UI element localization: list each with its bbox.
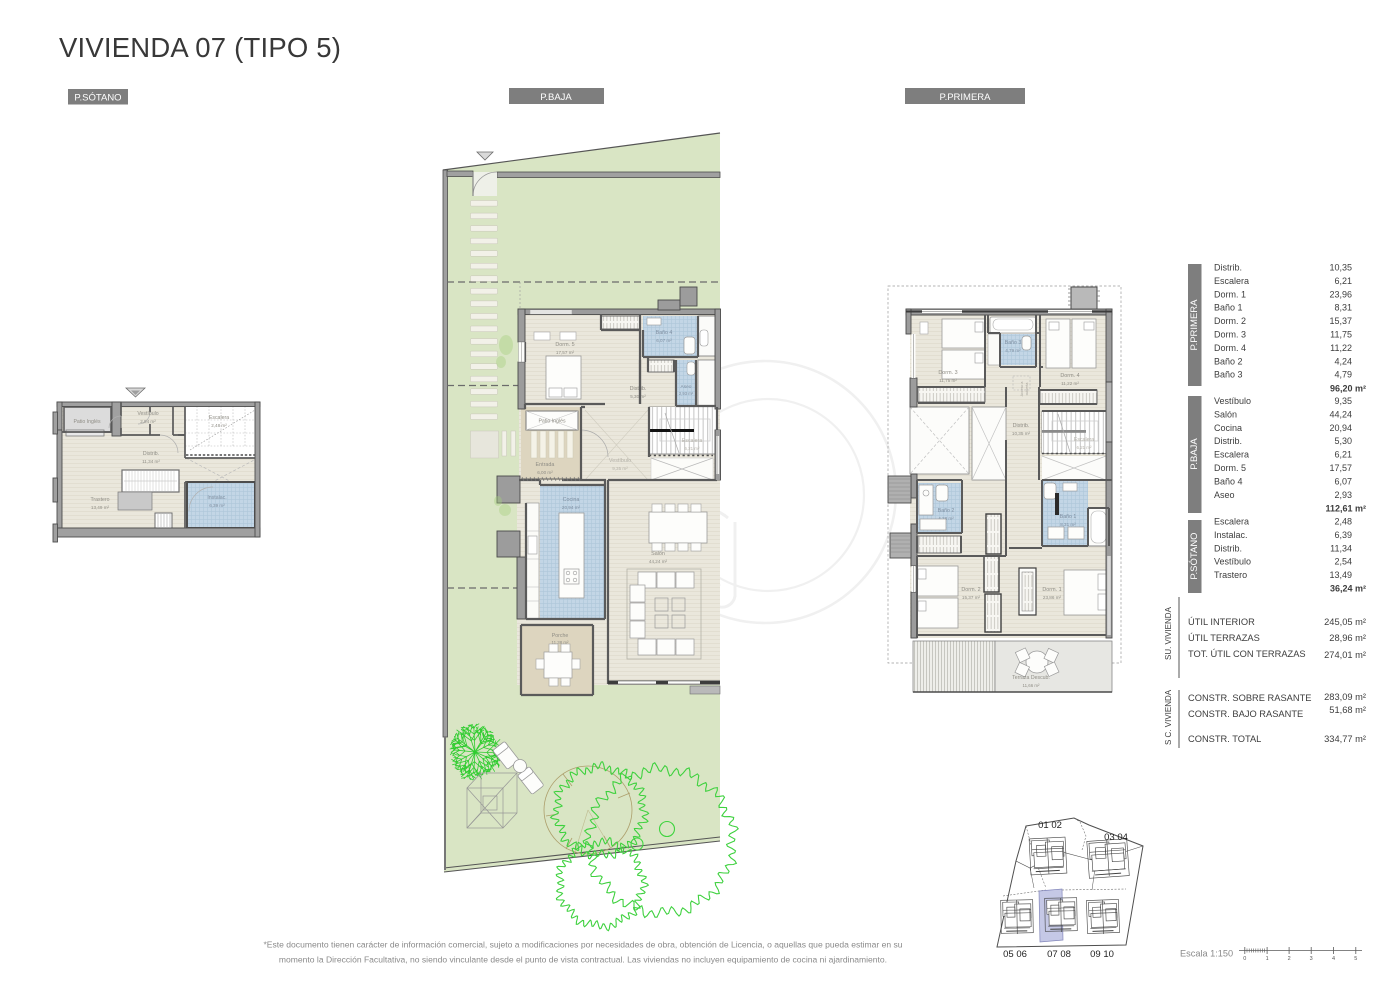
svg-text:11,75: 11,75 [1330,330,1352,340]
svg-text:Entrada: Entrada [536,462,555,468]
svg-text:Escalera: Escalera [682,438,702,444]
svg-text:28,96 m²: 28,96 m² [1329,633,1366,643]
svg-text:Dorm. 4: Dorm. 4 [1060,373,1079,379]
svg-text:momento la Dirección Facultati: momento la Dirección Facultativa, no sie… [279,955,887,965]
svg-text:112,61 m²: 112,61 m² [1325,503,1366,513]
svg-text:23,86 m²: 23,86 m² [1043,595,1062,600]
svg-text:96,20 m²: 96,20 m² [1330,383,1366,393]
svg-text:Escalera: Escalera [1214,276,1249,286]
svg-text:Baño 1: Baño 1 [1060,514,1077,520]
svg-text:Trastero: Trastero [1214,570,1247,580]
svg-text:20,94 m²: 20,94 m² [562,505,581,510]
svg-text:Dorm. 5: Dorm. 5 [1214,463,1246,473]
svg-text:5,30 m²: 5,30 m² [630,394,646,399]
svg-text:Patio Inglés: Patio Inglés [538,419,566,425]
svg-text:Salón: Salón [1214,409,1237,419]
svg-text:15,37: 15,37 [1329,316,1352,326]
svg-text:6,21: 6,21 [1334,450,1352,460]
svg-text:11,34: 11,34 [1330,543,1352,553]
svg-text:Baño 2: Baño 2 [1214,356,1243,366]
svg-text:Vestíbulo: Vestíbulo [137,411,158,417]
svg-text:11,22 m²: 11,22 m² [1061,381,1079,386]
svg-text:Vestíbulo: Vestíbulo [609,458,631,464]
svg-text:Vestíbulo: Vestíbulo [1214,396,1251,406]
svg-text:Baño 4: Baño 4 [1214,476,1243,486]
svg-text:CONSTR. BAJO RASANTE: CONSTR. BAJO RASANTE [1188,709,1303,719]
svg-text:Acceso a: Acceso a [1020,382,1024,397]
svg-text:Distrib.: Distrib. [1214,263,1242,273]
svg-text:15,37 m²: 15,37 m² [962,595,981,600]
svg-text:Dorm. 2: Dorm. 2 [1214,316,1246,326]
svg-text:Dorm. 1: Dorm. 1 [1042,587,1061,593]
svg-text:8,31 m²: 8,31 m² [1060,522,1076,527]
svg-text:36,24 m²: 36,24 m² [1330,584,1366,594]
svg-text:P.BAJA: P.BAJA [540,92,572,103]
svg-text:274,01 m²: 274,01 m² [1324,650,1366,660]
svg-text:Distrib.: Distrib. [1214,436,1242,446]
svg-text:10,35 m²: 10,35 m² [1012,431,1031,436]
svg-text:P.SÓTANO: P.SÓTANO [74,93,121,104]
svg-text:6,21: 6,21 [1334,276,1352,286]
svg-text:Baño 1: Baño 1 [1214,303,1243,313]
svg-text:P.PRIMERA: P.PRIMERA [939,92,991,103]
svg-text:6,21 m²: 6,21 m² [1077,445,1092,450]
svg-text:Aseo: Aseo [1214,490,1235,500]
svg-text:5,30: 5,30 [1334,436,1352,446]
svg-text:Distrib.: Distrib. [143,451,159,457]
svg-text:Distrib.: Distrib. [1013,423,1030,429]
svg-text:13,49 m²: 13,49 m² [91,505,110,510]
svg-text:VIVIENDA 07 (TIPO 5): VIVIENDA 07 (TIPO 5) [59,32,341,63]
svg-text:Distrib.: Distrib. [1214,543,1242,553]
svg-text:Salón: Salón [651,551,665,557]
svg-text:S C. VIVIENDA: S C. VIVIENDA [1164,689,1173,745]
svg-text:Vestíbulo: Vestíbulo [1214,557,1251,567]
svg-text:44,24 m²: 44,24 m² [649,559,668,564]
svg-text:Dorm. 3: Dorm. 3 [1214,330,1246,340]
svg-text:CONSTR. SOBRE RASANTE: CONSTR. SOBRE RASANTE [1188,693,1311,703]
svg-text:1: 1 [1266,956,1269,962]
svg-text:2,54: 2,54 [1334,557,1352,567]
svg-text:4,79: 4,79 [1334,370,1352,380]
svg-text:5: 5 [1354,956,1357,962]
svg-text:11,34 m²: 11,34 m² [142,459,160,464]
svg-text:cubierta: cubierta [1025,383,1029,396]
svg-text:SU. VIVIENDA: SU. VIVIENDA [1164,606,1173,660]
svg-text:Baño 3: Baño 3 [1005,340,1022,346]
svg-text:44,24: 44,24 [1329,409,1352,419]
svg-text:P.PRIMERA: P.PRIMERA [1189,299,1200,351]
svg-text:334,77 m²: 334,77 m² [1324,734,1366,744]
svg-text:11,75 m²: 11,75 m² [939,378,957,383]
svg-text:Escalera: Escalera [1214,517,1249,527]
svg-text:Dorm. 3: Dorm. 3 [938,370,957,376]
svg-text:6,07: 6,07 [1334,476,1352,486]
svg-text:6,21 m²: 6,21 m² [685,446,700,451]
svg-text:Dorm. 4: Dorm. 4 [1214,343,1246,353]
svg-text:Escala 1:150: Escala 1:150 [1180,949,1233,959]
svg-text:*Este documento tienen carácte: *Este documento tienen carácter de infor… [263,940,902,950]
svg-text:2,93: 2,93 [1334,490,1352,500]
svg-text:Baño 2: Baño 2 [938,508,955,514]
svg-text:P.SÓTANO: P.SÓTANO [1189,532,1200,579]
svg-text:6,39 m²: 6,39 m² [209,503,225,508]
svg-text:Escalera: Escalera [1214,450,1249,460]
svg-text:0: 0 [1243,956,1246,962]
svg-text:2,48 m²: 2,48 m² [211,423,227,428]
svg-text:Cocina: Cocina [1214,423,1242,433]
svg-text:2: 2 [1288,956,1291,962]
svg-text:2,93 m²: 2,93 m² [679,391,694,396]
svg-text:4,24: 4,24 [1334,356,1352,366]
svg-text:9,35: 9,35 [1334,396,1352,406]
svg-text:Escalera: Escalera [209,415,229,421]
svg-text:Baño 4: Baño 4 [656,330,673,336]
svg-text:23,96: 23,96 [1329,289,1352,299]
svg-text:51,68 m²: 51,68 m² [1329,705,1366,715]
svg-text:CONSTR. TOTAL: CONSTR. TOTAL [1188,734,1261,744]
svg-text:Distrib.: Distrib. [630,386,647,392]
svg-text:11,66 m²: 11,66 m² [1022,683,1040,688]
svg-text:Patio Inglés: Patio Inglés [73,419,101,425]
svg-text:05 06: 05 06 [1003,949,1027,960]
svg-text:3: 3 [1310,956,1313,962]
svg-text:13,49: 13,49 [1329,570,1352,580]
svg-text:4,79 m²: 4,79 m² [1005,348,1021,353]
svg-text:8,31: 8,31 [1334,303,1352,313]
svg-text:6,07 m²: 6,07 m² [656,338,672,343]
svg-text:283,09 m²: 283,09 m² [1324,692,1366,702]
svg-text:245,05 m²: 245,05 m² [1324,617,1366,627]
svg-text:17,57: 17,57 [1329,463,1352,473]
svg-text:Dorm. 5: Dorm. 5 [555,342,574,348]
svg-text:10,35: 10,35 [1329,263,1352,273]
svg-text:Cocina: Cocina [563,497,580,503]
svg-text:ÚTIL TERRAZAS: ÚTIL TERRAZAS [1188,633,1260,643]
svg-text:4: 4 [1332,956,1335,962]
svg-text:6,00 m²: 6,00 m² [537,470,553,475]
svg-text:ÚTIL INTERIOR: ÚTIL INTERIOR [1188,617,1255,627]
svg-text:6,39: 6,39 [1334,530,1352,540]
svg-text:TOT. ÚTIL CON TERRAZAS: TOT. ÚTIL CON TERRAZAS [1188,649,1306,659]
svg-text:Aseo: Aseo [681,384,692,390]
svg-text:Porche: Porche [552,633,569,639]
svg-text:Trastero: Trastero [90,497,109,503]
svg-text:Escalera: Escalera [1074,437,1094,443]
svg-text:03 04: 03 04 [1104,832,1128,843]
svg-text:20,94: 20,94 [1329,423,1352,433]
svg-text:Baño 3: Baño 3 [1214,370,1243,380]
svg-text:07 08: 07 08 [1047,949,1071,960]
svg-text:Instalac.: Instalac. [207,495,226,501]
svg-text:11,22: 11,22 [1330,343,1352,353]
svg-text:Dorm. 2: Dorm. 2 [961,587,980,593]
svg-text:P.BAJA: P.BAJA [1189,438,1200,470]
svg-text:Terraza Descub.: Terraza Descub. [1012,675,1050,681]
svg-text:09 10: 09 10 [1090,949,1114,960]
svg-text:9,35 m²: 9,35 m² [612,466,628,471]
svg-text:17,57 m²: 17,57 m² [556,350,575,355]
svg-text:2,94 m²: 2,94 m² [140,419,156,424]
svg-text:01 02: 01 02 [1038,820,1062,831]
svg-text:2,48: 2,48 [1334,517,1352,527]
svg-text:Dorm. 1: Dorm. 1 [1214,289,1246,299]
svg-text:Instalac.: Instalac. [1214,530,1248,540]
